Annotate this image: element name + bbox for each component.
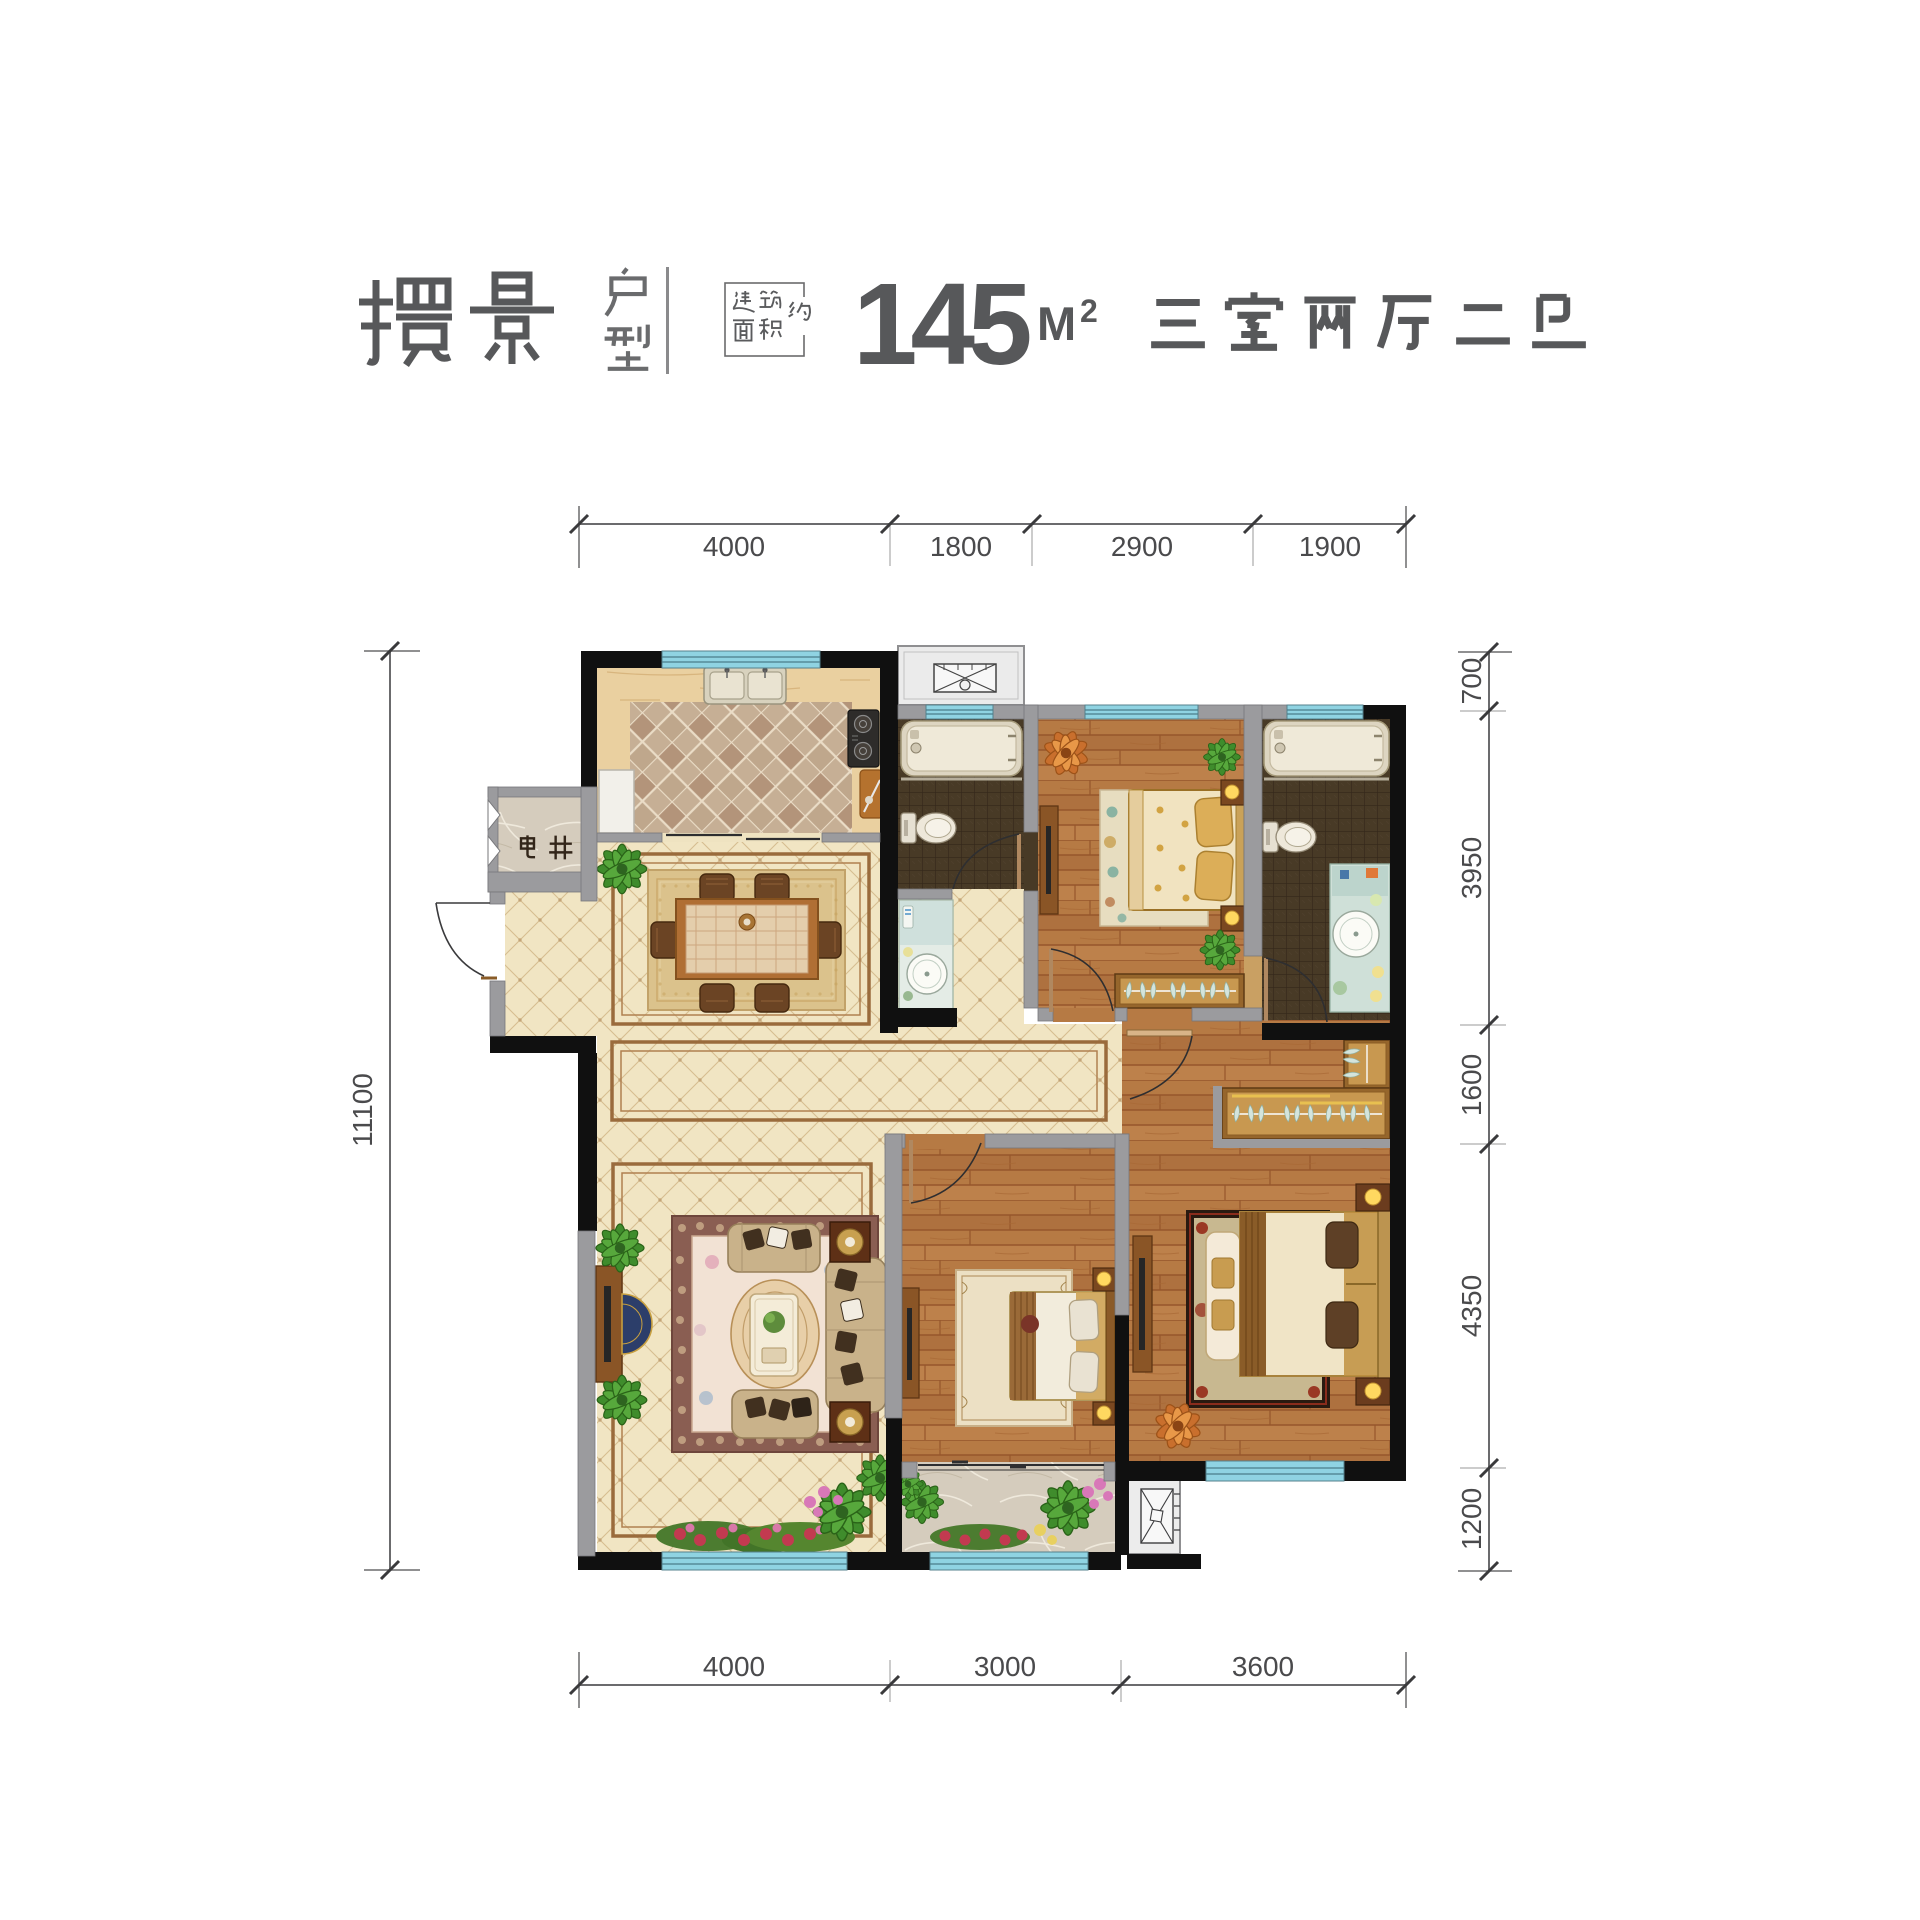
svg-text:2: 2 — [1080, 293, 1098, 329]
svg-text:145: 145 — [853, 259, 1030, 389]
svg-text:1200: 1200 — [1456, 1488, 1487, 1550]
svg-text:4000: 4000 — [703, 1651, 765, 1682]
svg-text:3600: 3600 — [1232, 1651, 1294, 1682]
svg-text:3000: 3000 — [974, 1651, 1036, 1682]
svg-text:4350: 4350 — [1456, 1275, 1487, 1337]
svg-text:4000: 4000 — [703, 531, 765, 562]
svg-text:M: M — [1037, 297, 1076, 350]
svg-text:1900: 1900 — [1299, 531, 1361, 562]
svg-text:700: 700 — [1456, 658, 1487, 705]
svg-text:1600: 1600 — [1456, 1054, 1487, 1116]
svg-text:1800: 1800 — [930, 531, 992, 562]
svg-text:3950: 3950 — [1456, 837, 1487, 899]
svg-text:11100: 11100 — [347, 1073, 378, 1147]
svg-text:2900: 2900 — [1111, 531, 1173, 562]
